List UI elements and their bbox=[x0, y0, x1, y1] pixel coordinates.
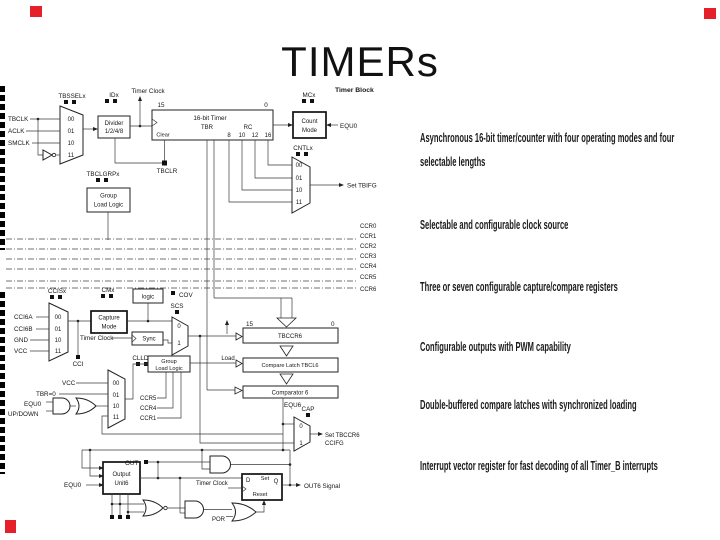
slide: TIMERs Asynchronous 16-bit timer/counter… bbox=[0, 0, 720, 540]
d-label: D bbox=[246, 478, 251, 484]
capture-label: Capture bbox=[98, 316, 120, 322]
timer-register: 15 0 16-bit Timer TBR RC Clear 8 10 12 1… bbox=[152, 102, 293, 140]
len10-label: 10 bbox=[239, 133, 246, 139]
ccr6-label: CCR6 bbox=[360, 287, 377, 293]
bullet-item: Asynchronous 16-bit timer/counter with f… bbox=[420, 126, 710, 174]
equ6-label: EQU6 bbox=[284, 402, 302, 409]
inverter-gate bbox=[43, 150, 52, 160]
mux-option: 10 bbox=[296, 188, 303, 194]
mux-option: 11 bbox=[68, 153, 75, 159]
bit15-label: 15 bbox=[246, 321, 254, 328]
q-label: Q bbox=[274, 479, 279, 485]
equ0-label: EQU0 bbox=[24, 401, 42, 408]
tbclr-label: TBCLR bbox=[157, 168, 178, 175]
ccr1-label: CCR1 bbox=[360, 234, 377, 240]
out6-signal-label: OUT6 Signal bbox=[304, 483, 340, 490]
mux-option: 11 bbox=[296, 200, 303, 206]
mcx-label: MCx bbox=[303, 92, 317, 99]
timer-clock-label: Timer Clock bbox=[131, 88, 165, 95]
ccr5-label: CCR5 bbox=[360, 275, 377, 281]
clear-label: Clear bbox=[156, 133, 170, 139]
and-gate bbox=[53, 398, 70, 414]
diagram-header: Timer Block bbox=[335, 87, 374, 94]
aclk-label: ACLK bbox=[8, 128, 25, 135]
reset-label: Reset bbox=[253, 492, 268, 498]
ccr4-label: CCR4 bbox=[360, 264, 377, 270]
mux-option: 01 bbox=[68, 129, 75, 135]
tbr-label: TBR bbox=[201, 125, 214, 131]
mode-label: Mode bbox=[302, 128, 318, 134]
out-label: OUT bbox=[125, 460, 138, 467]
cci6a-label: CCI6A bbox=[14, 314, 33, 321]
count-label: Count bbox=[301, 119, 317, 125]
mux-option: 01 bbox=[113, 393, 120, 399]
group-label: Group bbox=[161, 359, 177, 365]
cci6b-label: CCI6B bbox=[14, 326, 33, 333]
load-select-mux: CLLDx 00 01 10 11 VCC TBR=0 EQU0 UP/DOWN bbox=[8, 355, 283, 434]
ccr-separator-lines bbox=[6, 239, 356, 288]
red-marker-top-right bbox=[704, 8, 716, 19]
ccr0-label: CCR0 bbox=[360, 224, 377, 230]
mux-option: 00 bbox=[113, 381, 120, 387]
divider-label: Divider bbox=[105, 121, 124, 127]
bit15-label: 15 bbox=[157, 102, 165, 109]
page-title: TIMERs bbox=[0, 38, 720, 86]
clock-source-mux: TBSSELx 00 01 10 11 TBCLK ACLK SMCLK bbox=[8, 93, 98, 164]
comparator6-label: Comparator 6 bbox=[272, 391, 309, 397]
ccr1-label: CCR1 bbox=[140, 416, 157, 422]
bit0-label: 0 bbox=[264, 102, 268, 109]
smclk-label: SMCLK bbox=[8, 140, 30, 147]
length-select-mux: CNTLx 00 01 10 11 Set TBIFG bbox=[229, 140, 377, 213]
bullet-item: Configurable outputs with PWM capability bbox=[420, 335, 720, 359]
por-label: POR bbox=[212, 517, 226, 523]
load-logic-label: Load Logic bbox=[155, 366, 183, 372]
tbr-zero-label: TBR=0 bbox=[36, 391, 56, 398]
cov-label: COV bbox=[179, 292, 193, 299]
mux-option: 01 bbox=[296, 176, 303, 182]
logic-label: logic bbox=[142, 295, 154, 301]
timer-block-diagram: Timer Block CCR0 CCR1 CCR2 CCR3 CCR4 CCR… bbox=[0, 80, 400, 540]
vcc-label: VCC bbox=[14, 348, 28, 355]
nor-gate bbox=[143, 500, 163, 516]
up-down-label: UP/DOWN bbox=[8, 411, 39, 418]
bit0-label: 0 bbox=[331, 321, 335, 328]
mode-label: Mode bbox=[101, 325, 117, 331]
mux-option: 10 bbox=[113, 404, 120, 410]
and-gate bbox=[210, 456, 231, 473]
ccisx-label: CCISx bbox=[48, 288, 67, 295]
sync-label: Sync bbox=[142, 337, 155, 343]
mux-option: 11 bbox=[55, 349, 62, 355]
group-load-logic: CCR5 CCR4 CCR1 Group Load Logic Load bbox=[140, 356, 242, 422]
bullet-item: Double-buffered compare latches with syn… bbox=[420, 393, 720, 417]
load-label: Load bbox=[221, 356, 234, 362]
gnd-label: GND bbox=[14, 337, 28, 344]
len12-label: 12 bbox=[252, 133, 259, 139]
ccr5-label: CCR5 bbox=[140, 396, 157, 402]
tbclgrpx-label: TBCLGRPx bbox=[87, 171, 121, 178]
load-logic-label: Load Logic bbox=[94, 203, 123, 209]
group-load-top: TBCLGRPx Group Load Logic bbox=[87, 171, 130, 240]
ccr-list: CCR0 CCR1 CCR2 CCR3 CCR4 CCR5 CCR6 bbox=[360, 224, 377, 293]
ccr4-label: CCR4 bbox=[140, 406, 157, 412]
idx-label: IDx bbox=[109, 92, 119, 99]
tbccr6-label: TBCCR6 bbox=[278, 334, 303, 340]
equ0-label: EQU0 bbox=[64, 482, 82, 489]
tbclk-label: TBCLK bbox=[8, 116, 29, 123]
compare-latch-label: Compare Latch TBCL6 bbox=[261, 363, 318, 369]
set-tbccr6-label: Set TBCCR6 bbox=[325, 433, 360, 439]
len16-label: 16 bbox=[265, 133, 272, 139]
vcc-label: VCC bbox=[62, 380, 76, 387]
mux-option: 11 bbox=[113, 415, 120, 421]
bullet-item: Three or seven configurable capture/comp… bbox=[420, 275, 720, 299]
cmx-label: CMx bbox=[102, 287, 116, 294]
rc-label: RC bbox=[244, 125, 253, 131]
mux-option: 00 bbox=[68, 117, 75, 123]
and-gate bbox=[185, 501, 204, 518]
ccifg-label: CCIFG bbox=[325, 441, 344, 447]
capture-input-mux: CCISx 00 01 10 11 CCI6A CCI6B GND VCC CC… bbox=[14, 288, 91, 368]
or-gate bbox=[232, 503, 256, 521]
unit6-label: Unit6 bbox=[114, 481, 129, 487]
mux-option: 00 bbox=[55, 315, 62, 321]
bullet-item: Interrupt vector register for fast decod… bbox=[420, 454, 720, 478]
timer-name: 16-bit Timer bbox=[193, 115, 226, 122]
cci-label: CCI bbox=[73, 361, 84, 368]
mux-option: 01 bbox=[55, 327, 62, 333]
cntlx-label: CNTLx bbox=[293, 145, 313, 152]
mux-option: 10 bbox=[55, 338, 62, 344]
divider-ratio: 1/2/4/8 bbox=[105, 129, 124, 135]
timer-clock-label: Timer Clock bbox=[80, 335, 114, 342]
set-tbifg-label: Set TBIFG bbox=[347, 183, 377, 190]
timer-clock-label: Timer Clock bbox=[196, 481, 229, 487]
bullet-item: Selectable and configurable clock source bbox=[420, 213, 720, 237]
cap-label: CAP bbox=[302, 406, 315, 413]
scs-label: SCS bbox=[171, 303, 184, 310]
ccr2-label: CCR2 bbox=[360, 244, 377, 250]
output-label: Output bbox=[112, 472, 130, 478]
register-stack: 15 0 TBCCR6 Compare Latch TBCL6 Comparat… bbox=[225, 320, 338, 450]
tbsselx-label: TBSSELx bbox=[58, 93, 86, 100]
equ0-label: EQU0 bbox=[340, 123, 358, 130]
ccr3-label: CCR3 bbox=[360, 254, 377, 260]
cap-mux: CAP 0 1 Set TBCCR6 CCIFG bbox=[294, 406, 360, 451]
count-mode-block: MCx Count Mode EQU0 bbox=[293, 92, 358, 138]
mux-option: 10 bbox=[68, 141, 75, 147]
red-marker-top-left bbox=[30, 6, 42, 17]
group-label: Group bbox=[100, 194, 117, 200]
set-label: Set bbox=[261, 476, 270, 482]
or-gate bbox=[76, 398, 96, 414]
mux-option: 00 bbox=[296, 163, 303, 169]
